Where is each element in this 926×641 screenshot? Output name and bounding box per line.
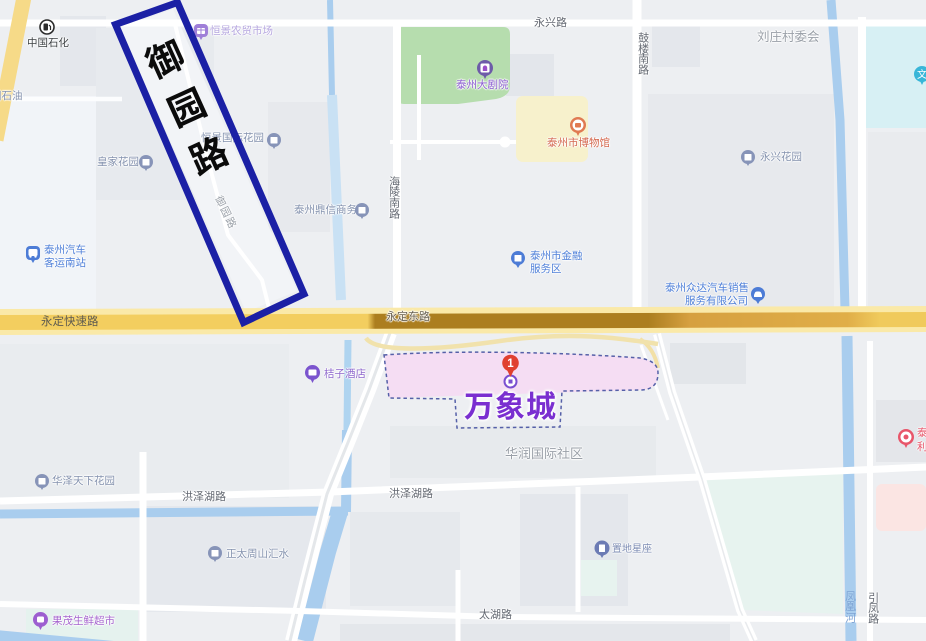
svg-text:文: 文 [917,66,926,81]
svg-text:1: 1 [507,358,514,370]
